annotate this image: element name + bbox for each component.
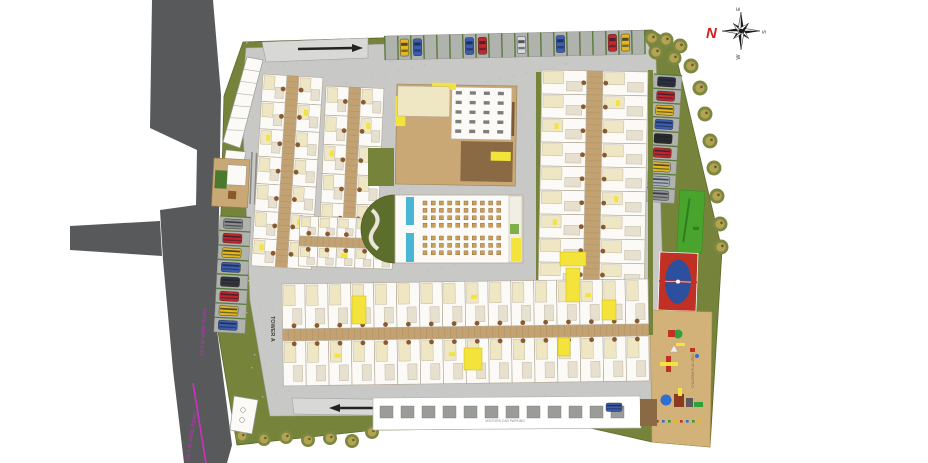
lift-core-icon xyxy=(558,338,570,356)
car-icon xyxy=(400,39,409,56)
car-icon xyxy=(656,91,675,102)
clubhouse xyxy=(361,195,523,263)
car-icon xyxy=(608,34,617,51)
car-icon xyxy=(223,233,242,243)
compass-south-label: S xyxy=(762,30,768,34)
car-icon xyxy=(221,262,240,272)
lift-core-icon xyxy=(352,296,366,324)
visitors-parking-label: VISITORS CAR PARKING xyxy=(485,419,525,423)
car-icon xyxy=(556,35,565,52)
left-parking-column xyxy=(214,216,251,333)
compass-north-label: N xyxy=(706,25,718,42)
car-icon xyxy=(653,148,672,159)
pool-icon xyxy=(406,197,414,225)
amenity-block xyxy=(394,82,517,186)
lift-core-icon xyxy=(566,268,580,302)
public-road xyxy=(70,0,232,463)
pool-icon xyxy=(406,233,414,262)
car-bottom-road xyxy=(606,403,622,412)
compass-east-label: E xyxy=(736,7,742,11)
tower-a-label: TOWER A xyxy=(269,316,275,342)
car-icon xyxy=(222,248,241,258)
children-play-label: CHILDREN PLAY AREA xyxy=(691,353,695,388)
car-icon xyxy=(655,119,674,130)
visitors-parking-strip: VISITORS CAR PARKING xyxy=(373,396,657,430)
lift-core-icon xyxy=(602,300,616,320)
public-road-branch xyxy=(70,221,162,256)
car-icon xyxy=(223,219,242,229)
entry-driveway-top xyxy=(262,38,368,62)
compass-star-icon xyxy=(722,12,760,50)
car-icon xyxy=(621,34,630,51)
car-icon xyxy=(220,277,239,287)
car-icon xyxy=(413,39,422,56)
car-icon xyxy=(517,36,526,53)
car-icon xyxy=(656,105,675,116)
car-icon xyxy=(657,77,676,88)
car-icon xyxy=(465,37,474,54)
car-icon xyxy=(218,320,237,330)
lift-core-icon xyxy=(560,252,586,266)
car-icon xyxy=(220,291,239,301)
compass-rose: N E S W xyxy=(706,7,768,60)
compass-west-label: W xyxy=(736,54,742,60)
entrance-gate xyxy=(211,158,249,208)
car-icon xyxy=(650,190,669,201)
car-icon xyxy=(606,403,622,412)
lift-core-icon xyxy=(464,348,482,370)
car-icon xyxy=(219,306,238,316)
lawn-area xyxy=(677,190,705,253)
car-icon xyxy=(651,176,670,187)
car-icon xyxy=(652,162,671,173)
car-icon xyxy=(478,37,487,54)
basketball-court xyxy=(658,252,698,311)
site-plan-page: CHILDREN PLAY AREA VISITORS CAR PARKING xyxy=(0,0,928,463)
children-play-area: CHILDREN PLAY AREA xyxy=(650,310,712,447)
site-plan-canvas: CHILDREN PLAY AREA VISITORS CAR PARKING xyxy=(0,0,928,463)
car-icon xyxy=(654,133,673,144)
